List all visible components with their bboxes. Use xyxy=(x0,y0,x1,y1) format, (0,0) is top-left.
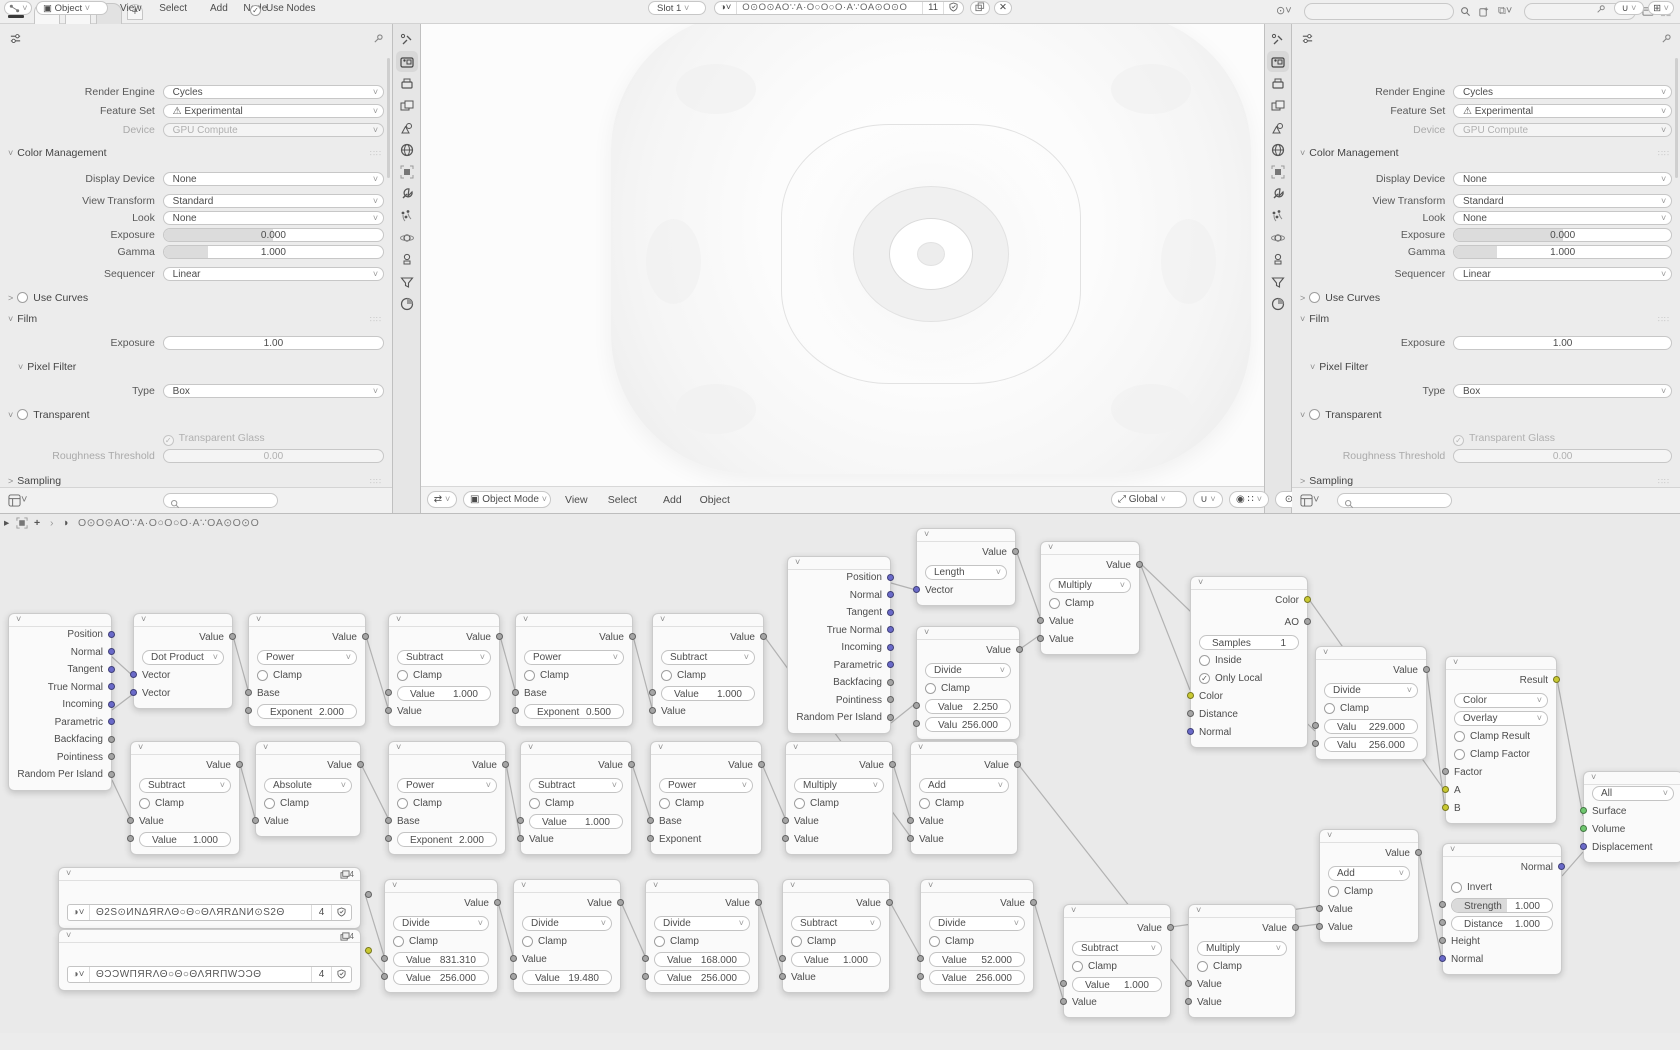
value-field[interactable]: Valu229.000 xyxy=(1324,719,1418,734)
operation-dropdown[interactable]: Subtract˅ xyxy=(661,650,755,665)
chevron-down-icon[interactable]: ˅ xyxy=(1300,410,1305,420)
checkbox[interactable] xyxy=(929,936,940,947)
socket[interactable] xyxy=(245,689,252,696)
operation-dropdown[interactable]: Power˅ xyxy=(524,650,624,665)
pin-icon[interactable] xyxy=(373,30,384,48)
field-roughness-threshold[interactable]: 0.00 xyxy=(1453,449,1672,463)
socket[interactable] xyxy=(517,835,524,842)
socket[interactable] xyxy=(381,973,388,980)
checkbox[interactable] xyxy=(1049,598,1060,609)
collapse-chevron-icon[interactable]: ˅ xyxy=(528,742,533,752)
collapse-chevron-icon[interactable]: ˅ xyxy=(16,614,21,624)
section-checkbox[interactable] xyxy=(1309,409,1320,420)
properties-tab-particles-icon[interactable] xyxy=(1267,205,1289,226)
socket[interactable] xyxy=(887,661,894,668)
collapse-chevron-icon[interactable]: ˅ xyxy=(1196,905,1201,915)
socket[interactable] xyxy=(1037,617,1044,624)
node-math-divide-19[interactable]: ˅ValueDivide˅ClampValueValue19.480 xyxy=(513,879,621,993)
socket[interactable] xyxy=(357,761,364,768)
properties-tab-world-icon[interactable] xyxy=(396,139,418,160)
operation-dropdown[interactable]: Power˅ xyxy=(257,650,357,665)
socket[interactable] xyxy=(108,631,115,638)
section-checkbox[interactable] xyxy=(17,409,28,420)
socket[interactable] xyxy=(108,718,115,725)
socket[interactable] xyxy=(760,633,767,640)
node-math-add-b[interactable]: ˅ValueAdd˅ClampValueValue xyxy=(1319,829,1419,943)
scrollbar[interactable] xyxy=(387,58,390,178)
operation-dropdown[interactable]: Divide˅ xyxy=(1324,683,1418,698)
node-math-subtract-r2a[interactable]: ˅ValueSubtract˅ClampValueValue1.000 xyxy=(130,741,240,855)
socket[interactable] xyxy=(887,626,894,633)
socket[interactable] xyxy=(1030,899,1037,906)
shader-node-editor[interactable]: ˅PositionNormalTangentTrue NormalIncomin… xyxy=(0,513,1680,1033)
drag-grip-icon[interactable]: ∷∷ xyxy=(370,315,382,324)
socket[interactable] xyxy=(517,817,524,824)
operation-dropdown[interactable]: Divide˅ xyxy=(654,916,750,931)
socket[interactable] xyxy=(628,761,635,768)
socket[interactable] xyxy=(1292,924,1299,931)
viewport-editor-type-button[interactable]: ⇄ ˅ xyxy=(427,491,457,508)
socket[interactable] xyxy=(512,707,519,714)
snapping-magnet-icon[interactable]: ∪ ˅ xyxy=(1614,1,1644,15)
checkbox[interactable] xyxy=(791,936,802,947)
socket[interactable] xyxy=(510,973,517,980)
viewport-menu-object[interactable]: Object xyxy=(700,494,730,506)
collapse-chevron-icon[interactable]: ˅ xyxy=(66,868,71,878)
collapse-chevron-icon[interactable]: ˅ xyxy=(1591,772,1596,782)
socket[interactable] xyxy=(887,609,894,616)
checkbox[interactable]: ✓ xyxy=(1199,673,1210,684)
operation-dropdown[interactable]: Subtract˅ xyxy=(1072,941,1162,956)
collapse-chevron-icon[interactable]: ˅ xyxy=(928,880,933,890)
chevron-down-icon[interactable]: ˅ xyxy=(1310,362,1315,372)
collapse-chevron-icon[interactable]: ˅ xyxy=(396,614,401,624)
socket[interactable] xyxy=(1185,998,1192,1005)
section-checkbox[interactable] xyxy=(1309,292,1320,303)
properties-tab-view-layer-icon[interactable] xyxy=(396,95,418,116)
editor-type-icon[interactable]: ˅ xyxy=(8,493,27,508)
use-nodes-checkbox[interactable]: ✓Use Nodes xyxy=(250,3,315,16)
chevron-down-icon[interactable]: ˅ xyxy=(1300,148,1305,158)
socket[interactable] xyxy=(1439,937,1446,944)
value-field[interactable]: Value1.000 xyxy=(397,686,491,701)
socket[interactable] xyxy=(1187,710,1194,717)
socket[interactable] xyxy=(887,591,894,598)
properties-tab-constraints-icon[interactable] xyxy=(1267,249,1289,270)
section-header[interactable]: ˅Color Management xyxy=(1300,147,1399,159)
checkbox[interactable]: ✓ xyxy=(163,435,174,446)
scene-browse-icon[interactable]: ⊙˅ xyxy=(1276,4,1292,19)
node-math-power-r2[interactable]: ˅ValuePower˅ClampBaseExponent2.000 xyxy=(388,741,506,855)
socket[interactable] xyxy=(913,586,920,593)
checkbox[interactable] xyxy=(1324,703,1335,714)
operation-dropdown[interactable]: Divide˅ xyxy=(929,916,1025,931)
slot-dropdown[interactable]: Slot 1 ˅ xyxy=(648,1,706,15)
collapse-chevron-icon[interactable]: ˅ xyxy=(918,742,923,752)
operation-dropdown[interactable]: Multiply˅ xyxy=(1197,941,1287,956)
socket[interactable] xyxy=(127,817,134,824)
drag-grip-icon[interactable]: ∷∷ xyxy=(1658,477,1670,486)
node-menu-select[interactable]: Select xyxy=(159,3,187,14)
checkbox[interactable] xyxy=(1454,731,1465,742)
node-editor-type-button[interactable]: ˅ xyxy=(4,1,32,15)
collapse-chevron-icon[interactable]: ˅ xyxy=(263,742,268,752)
copy-material-icon[interactable] xyxy=(970,1,990,15)
dropdown-sequencer[interactable]: Linear˅ xyxy=(163,267,384,281)
node-math-subtract-b[interactable]: ˅ValueSubtract˅ClampValue1.000Value xyxy=(1063,904,1171,1018)
properties-tab-tool-icon[interactable] xyxy=(396,29,418,50)
dropdown-look[interactable]: None˅ xyxy=(1453,211,1672,225)
checkbox[interactable] xyxy=(1199,655,1210,666)
node-math-power-r2b[interactable]: ˅ValuePower˅ClampBaseExponent xyxy=(650,741,762,855)
socket[interactable] xyxy=(1185,980,1192,987)
node-math-divide-831[interactable]: ˅ValueDivide˅ClampValue831.310Value256.0… xyxy=(384,879,498,993)
field-gamma[interactable]: 1.000 xyxy=(1453,245,1672,259)
properties-tab-constraints-icon[interactable] xyxy=(396,249,418,270)
socket[interactable] xyxy=(642,973,649,980)
socket[interactable] xyxy=(1558,863,1565,870)
value-field[interactable]: Value831.310 xyxy=(393,952,489,967)
socket[interactable] xyxy=(1304,618,1311,625)
collapse-chevron-icon[interactable]: ˅ xyxy=(795,557,800,567)
collapse-chevron-icon[interactable]: ˅ xyxy=(66,930,71,940)
socket[interactable] xyxy=(1312,722,1319,729)
value-field[interactable]: Strength1.000 xyxy=(1451,898,1553,913)
socket[interactable] xyxy=(1439,955,1446,962)
properties-tab-render-icon[interactable] xyxy=(1267,51,1289,72)
dropdown-view-transform[interactable]: Standard˅ xyxy=(1453,194,1672,208)
socket[interactable] xyxy=(887,696,894,703)
properties-tab-scene-icon[interactable] xyxy=(1267,117,1289,138)
chevron-down-icon[interactable]: ˅ xyxy=(8,148,13,158)
node-math-divide-52[interactable]: ˅ValueDivide˅ClampValue52.000Value256.00… xyxy=(920,879,1034,993)
node-math-multiply-r2[interactable]: ˅ValueMultiply˅ClampValueValue xyxy=(785,741,893,855)
socket[interactable] xyxy=(1187,728,1194,735)
collapse-chevron-icon[interactable]: ˅ xyxy=(658,742,663,752)
socket[interactable] xyxy=(108,683,115,690)
value-field[interactable]: Value2.250 xyxy=(925,699,1011,714)
datablock-users-count[interactable]: 4 xyxy=(311,967,331,982)
viewport-menu-view[interactable]: View xyxy=(565,494,588,506)
operation-dropdown[interactable]: Multiply˅ xyxy=(794,778,884,793)
socket[interactable] xyxy=(362,633,369,640)
collapse-chevron-icon[interactable]: ˅ xyxy=(1048,542,1053,552)
properties-filter-icon[interactable] xyxy=(1301,30,1314,48)
datablock-selector[interactable]: ◑˅Θ2S⊙ИΝΔЯRΛΘ○Θ○ΘΛЯRΔΝИ⊙S2Θ4 xyxy=(67,904,352,921)
checkbox[interactable] xyxy=(524,670,535,681)
chevron-down-icon[interactable]: ˅ xyxy=(8,314,13,324)
properties-tab-tool-icon[interactable] xyxy=(1267,29,1289,50)
value-field[interactable]: Value19.480 xyxy=(522,970,612,985)
properties-tab-world-icon[interactable] xyxy=(1267,139,1289,160)
value-field[interactable]: Value1.000 xyxy=(791,952,881,967)
checkbox[interactable] xyxy=(393,936,404,947)
operation-dropdown[interactable]: All˅ xyxy=(1592,786,1674,801)
checkbox[interactable] xyxy=(1454,749,1465,760)
node-image-data-b[interactable]: ˅4◑˅ΘƆƆWПЯRΛΘ○Θ○ΘΛЯRПWƆƆΘ4 xyxy=(58,929,361,991)
socket[interactable] xyxy=(108,666,115,673)
socket[interactable] xyxy=(1167,924,1174,931)
orientation-dropdown[interactable]: ⤢ Global ˅ xyxy=(1111,491,1187,508)
viewlayer-icon[interactable]: ⧉˅ xyxy=(1498,4,1512,19)
socket[interactable] xyxy=(887,574,894,581)
dropdown-feature-set[interactable]: ⚠ Experimental˅ xyxy=(163,104,384,118)
node-math-divide-2250[interactable]: ˅ValueDivide˅ClampValue2.250Valu256.000 xyxy=(916,626,1020,740)
field-roughness-threshold[interactable]: 0.00 xyxy=(163,449,384,463)
node-geometry-2[interactable]: ˅PositionNormalTangentTrue NormalIncomin… xyxy=(787,556,891,734)
dropdown-display-device[interactable]: None˅ xyxy=(1453,172,1672,186)
datablock-browse-icon[interactable]: ◑˅ xyxy=(68,905,90,920)
checkbox[interactable] xyxy=(1451,882,1462,893)
material-name[interactable]: O⊙O⊙AO∵A·O○O○O·A∵OA⊙O⊙O xyxy=(736,2,922,14)
checkbox[interactable] xyxy=(1328,886,1339,897)
socket[interactable] xyxy=(1553,676,1560,683)
socket[interactable] xyxy=(130,689,137,696)
socket[interactable] xyxy=(649,689,656,696)
properties-tab-view-layer-icon[interactable] xyxy=(1267,95,1289,116)
value-field[interactable]: Distance1.000 xyxy=(1451,916,1553,931)
socket[interactable] xyxy=(385,835,392,842)
socket[interactable] xyxy=(1060,998,1067,1005)
material-id-block[interactable]: ◑˅ O⊙O⊙AO∵A·O○O○O·A∵OA⊙O⊙O 11 xyxy=(714,1,964,15)
dropdown-render-engine[interactable]: Cycles˅ xyxy=(163,85,384,99)
socket[interactable] xyxy=(365,947,372,954)
properties-tab-output-icon[interactable] xyxy=(396,73,418,94)
node-math-add-r2[interactable]: ˅ValueAdd˅ClampValueValue xyxy=(910,741,1018,855)
socket[interactable] xyxy=(917,955,924,962)
operation-dropdown[interactable]: Add˅ xyxy=(919,778,1009,793)
socket[interactable] xyxy=(887,714,894,721)
checkbox[interactable] xyxy=(659,798,670,809)
collapse-chevron-icon[interactable]: ˅ xyxy=(1327,830,1332,840)
datablock-name[interactable]: Θ2S⊙ИΝΔЯRΛΘ○Θ○ΘΛЯRΔΝИ⊙S2Θ xyxy=(90,905,311,920)
socket[interactable] xyxy=(385,707,392,714)
socket[interactable] xyxy=(108,736,115,743)
dropdown-display-device[interactable]: None˅ xyxy=(163,172,384,186)
value-field[interactable]: Value1.000 xyxy=(529,814,623,829)
socket[interactable] xyxy=(381,955,388,962)
socket[interactable] xyxy=(889,761,896,768)
socket[interactable] xyxy=(1580,825,1587,832)
collapse-chevron-icon[interactable]: ˅ xyxy=(1198,577,1203,587)
checkbox[interactable] xyxy=(264,798,275,809)
socket[interactable] xyxy=(1187,692,1194,699)
unlink-material-icon[interactable]: ✕ xyxy=(994,1,1012,15)
properties-tab-modifiers-icon[interactable] xyxy=(1267,183,1289,204)
checkbox[interactable] xyxy=(654,936,665,947)
section-header[interactable]: ˅Pixel Filter xyxy=(18,361,76,373)
socket[interactable] xyxy=(512,689,519,696)
node-ambient-occlusion[interactable]: ˅ColorAOSamples1Inside✓Only LocalColorDi… xyxy=(1190,576,1308,748)
node-math-divide-168[interactable]: ˅ValueDivide˅ClampValue168.000Value256.0… xyxy=(645,879,759,993)
value-field[interactable]: Value256.000 xyxy=(929,970,1025,985)
dropdown-look[interactable]: None˅ xyxy=(163,211,384,225)
collapse-chevron-icon[interactable]: ˅ xyxy=(1323,647,1328,657)
chevron-right-icon[interactable]: ˃ xyxy=(8,293,13,303)
collapse-chevron-icon[interactable]: ˅ xyxy=(793,742,798,752)
checkbox[interactable] xyxy=(529,798,540,809)
checkbox[interactable]: ✓ xyxy=(1453,435,1464,446)
properties-filter-icon[interactable] xyxy=(9,30,22,48)
chevron-right-icon[interactable]: ˃ xyxy=(1300,476,1305,486)
socket[interactable] xyxy=(494,899,501,906)
operation-dropdown[interactable]: Subtract˅ xyxy=(397,650,491,665)
material-users-count[interactable]: 11 xyxy=(922,2,943,14)
value-field[interactable]: Valu256.000 xyxy=(1324,737,1418,752)
properties-tab-output-icon[interactable] xyxy=(1267,73,1289,94)
value-field[interactable]: Value1.000 xyxy=(139,832,231,847)
socket[interactable] xyxy=(907,835,914,842)
socket[interactable] xyxy=(496,633,503,640)
checkbox[interactable] xyxy=(925,683,936,694)
socket[interactable] xyxy=(229,633,236,640)
node-math-power-05[interactable]: ˅ValuePower˅ClampBaseExponent0.500 xyxy=(515,613,633,727)
chevron-down-icon[interactable]: ˅ xyxy=(1300,314,1305,324)
operation-dropdown[interactable]: Add˅ xyxy=(1328,866,1410,881)
checkbox[interactable] xyxy=(919,798,930,809)
operation-dropdown[interactable]: Divide˅ xyxy=(925,663,1011,678)
operation-dropdown[interactable]: Power˅ xyxy=(397,778,497,793)
properties-tab-modifiers-icon[interactable] xyxy=(396,183,418,204)
socket[interactable] xyxy=(913,720,920,727)
section-header[interactable]: ˅Transparent xyxy=(8,409,90,421)
node-math-power-2[interactable]: ˅ValuePower˅ClampBaseExponent2.000 xyxy=(248,613,366,727)
new-scene-icon[interactable] xyxy=(1478,4,1489,19)
socket[interactable] xyxy=(1316,923,1323,930)
collapse-chevron-icon[interactable]: ˅ xyxy=(1450,844,1455,854)
socket[interactable] xyxy=(647,817,654,824)
socket[interactable] xyxy=(1060,980,1067,987)
shader-type-dropdown[interactable]: ▣ Object ˅ xyxy=(36,1,108,15)
section-header[interactable]: ˅Color Management xyxy=(8,147,107,159)
operation-dropdown[interactable]: Power˅ xyxy=(659,778,753,793)
node-math-subtract-r3[interactable]: ˅ValueSubtract˅ClampValue1.000Value xyxy=(782,879,890,993)
collapse-chevron-icon[interactable]: ˅ xyxy=(653,880,658,890)
pin-icon[interactable] xyxy=(1596,2,1606,17)
socket[interactable] xyxy=(779,955,786,962)
drag-grip-icon[interactable]: ∷∷ xyxy=(1658,315,1670,324)
checkbox[interactable] xyxy=(397,670,408,681)
fake-user-shield-icon[interactable] xyxy=(943,2,963,14)
value-field[interactable]: Value256.000 xyxy=(393,970,489,985)
socket[interactable] xyxy=(782,835,789,842)
proportional-edit-dropdown[interactable]: ◉ ∷ ˅ xyxy=(1229,491,1269,508)
node-math-subtract-1[interactable]: ˅ValueSubtract˅ClampValue1.000Value xyxy=(388,613,500,727)
field-exposure[interactable]: 1.00 xyxy=(1453,336,1672,350)
operation-dropdown[interactable]: Divide˅ xyxy=(393,916,489,931)
properties-search-input[interactable] xyxy=(163,493,278,508)
socket[interactable] xyxy=(385,817,392,824)
properties-tab-object-data-icon[interactable] xyxy=(396,271,418,292)
node-math-multiply-b[interactable]: ˅ValueMultiply˅ClampValueValue xyxy=(1188,904,1296,1018)
socket[interactable] xyxy=(365,891,372,898)
socket[interactable] xyxy=(1580,843,1587,850)
collapse-chevron-icon[interactable]: ˅ xyxy=(256,614,261,624)
socket[interactable] xyxy=(108,753,115,760)
node-vector-math-dot[interactable]: ˅ValueDot Product˅VectorVector xyxy=(133,613,233,709)
node-math-subtract-2[interactable]: ˅ValueSubtract˅ClampValue1.000Value xyxy=(652,613,764,727)
drag-grip-icon[interactable]: ∷∷ xyxy=(1658,149,1670,158)
properties-tab-object-data-icon[interactable] xyxy=(1267,271,1289,292)
value-field[interactable]: Exponent0.500 xyxy=(524,704,624,719)
socket[interactable] xyxy=(385,689,392,696)
fake-user-shield-icon[interactable] xyxy=(331,905,351,920)
collapse-chevron-icon[interactable]: ˅ xyxy=(523,614,528,624)
editor-corner-icon[interactable]: ▸ xyxy=(4,517,9,529)
field-exposure[interactable]: 1.00 xyxy=(163,336,384,350)
properties-tab-render-icon[interactable] xyxy=(396,51,418,72)
node-image-data-a[interactable]: ˅4◑˅Θ2S⊙ИΝΔЯRΛΘ○Θ○ΘΛЯRΔΝИ⊙S2Θ4 xyxy=(58,867,361,929)
viewport-menu-add[interactable]: Add xyxy=(663,494,682,506)
properties-tab-object-icon[interactable] xyxy=(1267,161,1289,182)
operation-dropdown[interactable]: Subtract˅ xyxy=(529,778,623,793)
section-header[interactable]: ˅Pixel Filter xyxy=(1310,361,1368,373)
socket[interactable] xyxy=(252,817,259,824)
socket[interactable] xyxy=(1415,849,1422,856)
socket[interactable] xyxy=(127,835,134,842)
dropdown-type[interactable]: Box˅ xyxy=(1453,384,1672,398)
dropdown-sequencer[interactable]: Linear˅ xyxy=(1453,267,1672,281)
socket[interactable] xyxy=(108,771,115,778)
viewport-3d[interactable]: ⇄ ˅ ▣ Object Mode ˅ ViewSelectAddObject … xyxy=(421,24,1265,513)
section-header[interactable]: ˅Film xyxy=(1300,313,1329,325)
collapse-chevron-icon[interactable]: ˅ xyxy=(790,880,795,890)
socket[interactable] xyxy=(1312,740,1319,747)
field-gamma[interactable]: 1.000 xyxy=(163,245,384,259)
socket[interactable] xyxy=(1012,548,1019,555)
socket[interactable] xyxy=(130,671,137,678)
pin-icon[interactable] xyxy=(1661,30,1672,48)
properties-tab-object-icon[interactable] xyxy=(396,161,418,182)
section-header[interactable]: ˃Use Curves xyxy=(8,292,88,304)
node-geometry-1[interactable]: ˅PositionNormalTangentTrue NormalIncomin… xyxy=(8,613,112,791)
socket[interactable] xyxy=(913,702,920,709)
viewport-canvas[interactable] xyxy=(421,24,1264,486)
node-material-output[interactable]: ˅All˅SurfaceVolumeDisplacement xyxy=(1583,771,1680,863)
value-field[interactable]: Samples1 xyxy=(1199,635,1299,650)
value-field[interactable]: Exponent2.000 xyxy=(257,704,357,719)
chevron-down-icon[interactable]: ˅ xyxy=(8,410,13,420)
checkbox[interactable] xyxy=(257,670,268,681)
socket[interactable] xyxy=(1580,807,1587,814)
value-field[interactable]: Value1.000 xyxy=(661,686,755,701)
node-math-multiply-top[interactable]: ˅ValueMultiply˅ClampValueValue xyxy=(1040,541,1140,655)
dropdown-render-engine[interactable]: Cycles˅ xyxy=(1453,85,1672,99)
checkbox[interactable] xyxy=(1072,961,1083,972)
collapse-chevron-icon[interactable]: ˅ xyxy=(141,614,146,624)
scene-name-field[interactable] xyxy=(1304,3,1454,20)
collapse-chevron-icon[interactable]: ˅ xyxy=(1453,657,1458,667)
overlay-toggle-icon[interactable]: ⊞ ˅ xyxy=(1648,1,1674,15)
dropdown-feature-set[interactable]: ⚠ Experimental˅ xyxy=(1453,104,1672,118)
checkbox[interactable] xyxy=(139,798,150,809)
operation-dropdown[interactable]: Length˅ xyxy=(925,565,1007,580)
value-field[interactable]: Valu256.000 xyxy=(925,717,1011,732)
socket[interactable] xyxy=(1037,635,1044,642)
node-vector-math-length[interactable]: ˅ValueLength˅Vector xyxy=(916,528,1016,606)
operation-dropdown[interactable]: Color˅ xyxy=(1454,693,1548,708)
operation-dropdown[interactable]: Overlay˅ xyxy=(1454,711,1548,726)
collapse-chevron-icon[interactable]: ˅ xyxy=(924,627,929,637)
node-math-subtract-r2b[interactable]: ˅ValueSubtract˅ClampValue1.000Value xyxy=(520,741,632,855)
socket[interactable] xyxy=(1316,905,1323,912)
collapse-chevron-icon[interactable]: ˅ xyxy=(392,880,397,890)
material-browse-icon[interactable]: ◑˅ xyxy=(715,2,736,14)
datablock-users-count[interactable]: 4 xyxy=(311,905,331,920)
dropdown-type[interactable]: Box˅ xyxy=(163,384,384,398)
datablock-name[interactable]: ΘƆƆWПЯRΛΘ○Θ○ΘΛЯRПWƆƆΘ xyxy=(90,967,311,982)
section-header[interactable]: ˅Film xyxy=(8,313,37,325)
